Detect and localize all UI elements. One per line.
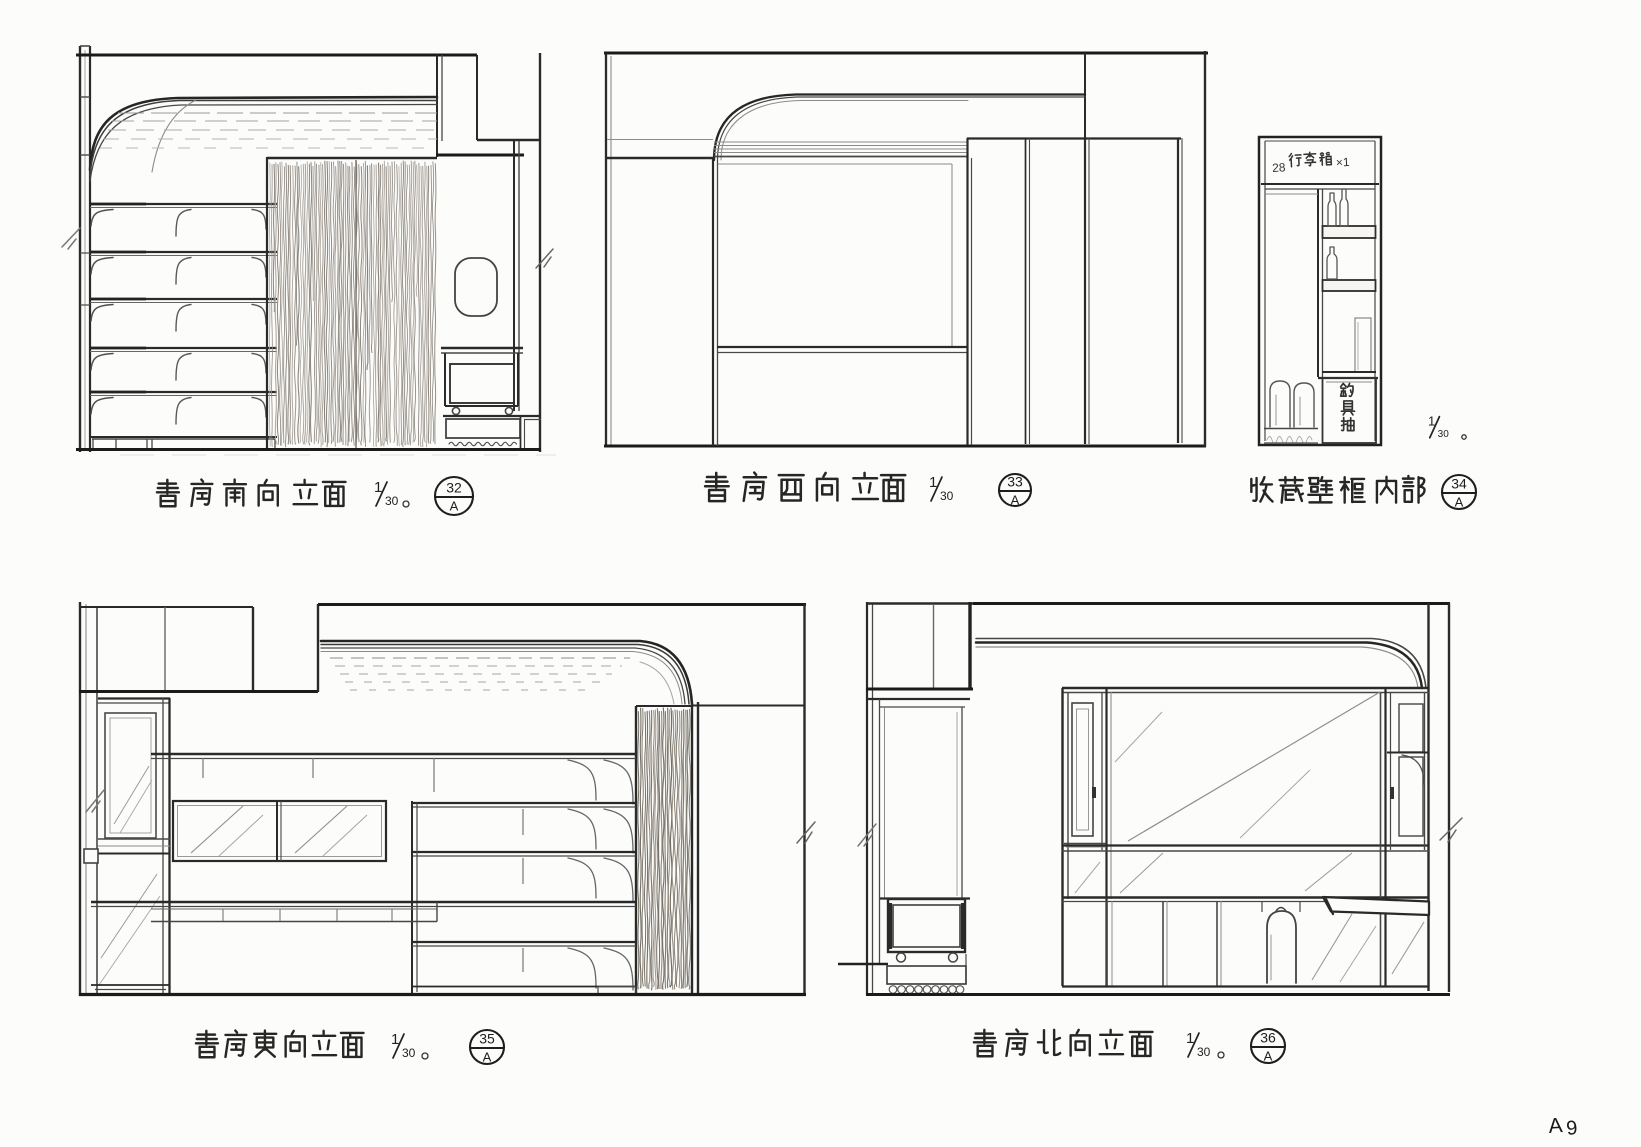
svg-text:A: A [483,1050,492,1065]
svg-text:30: 30 [402,1046,416,1060]
svg-text:A: A [1264,1049,1273,1064]
svg-text:A: A [1548,1114,1564,1138]
svg-text:30: 30 [1438,429,1450,440]
svg-text:A: A [450,499,459,514]
svg-text:30: 30 [940,489,954,503]
svg-text:A: A [1455,495,1464,510]
svg-text:30: 30 [1197,1045,1211,1059]
svg-text:A: A [1011,493,1020,508]
svg-text:36: 36 [1260,1030,1276,1046]
svg-text:30: 30 [385,494,399,508]
svg-text:34: 34 [1451,476,1467,492]
svg-text:28: 28 [1272,160,1286,175]
svg-text:32: 32 [446,480,462,496]
svg-text:9: 9 [1565,1117,1578,1140]
svg-text:33: 33 [1007,474,1023,490]
svg-text:35: 35 [479,1031,495,1047]
svg-text:×1: ×1 [1336,155,1351,170]
